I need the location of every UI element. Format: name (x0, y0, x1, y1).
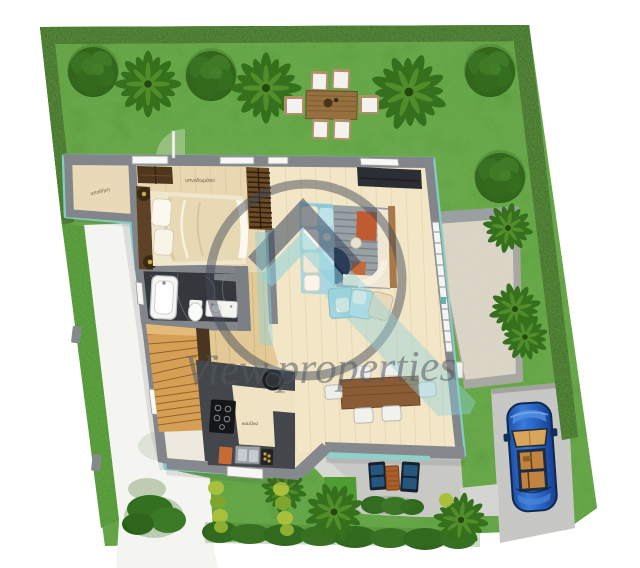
svg-text:View properties: View properties (183, 341, 457, 395)
svg-text:κουζίνα: κουζίνα (242, 421, 258, 427)
svg-text:υπνοδωμάτιο: υπνοδωμάτιο (185, 177, 215, 184)
